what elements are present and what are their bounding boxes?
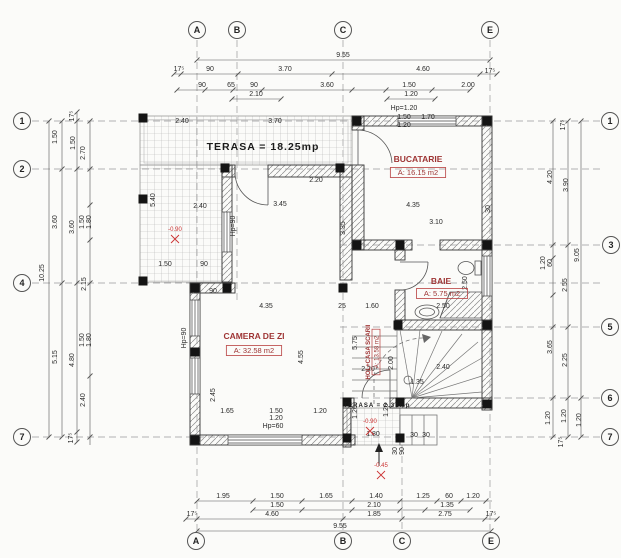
dimension-label: 1.50 — [70, 136, 77, 150]
column — [343, 434, 352, 443]
dimension-label: Hp=90 — [230, 215, 237, 236]
dimension-label: 1.20 — [540, 256, 547, 270]
grid-marker-label: 7 — [607, 432, 612, 442]
dimension-label: 90 — [250, 82, 258, 89]
dimension-label: Hp=1.20 — [391, 105, 418, 112]
dimension-label: 5.15 — [52, 350, 59, 364]
dimension-label: 1.50 — [402, 82, 416, 89]
column — [339, 284, 348, 293]
column — [483, 117, 492, 126]
column — [221, 164, 230, 173]
dimension-label: 90 — [399, 447, 406, 455]
dimension-label: 30 — [392, 447, 399, 455]
dimension-label: 1.20 — [466, 493, 480, 500]
dimension-label: 1.25 — [416, 493, 430, 500]
dimension-label: 1.35 — [410, 379, 424, 386]
grid-marker-label: 6 — [607, 393, 612, 403]
dimension-label: 3.60 — [320, 82, 334, 89]
column — [396, 434, 405, 443]
dimension-label: 17⁵ — [558, 437, 565, 448]
dimension-label: 4.20 — [547, 170, 554, 184]
dimension-label: 1.20 — [545, 411, 552, 425]
column — [483, 321, 492, 330]
grid-marker-label: 2 — [19, 164, 24, 174]
dimension-label: 1.20 — [269, 415, 283, 422]
dimension-label: 4.80 — [69, 353, 76, 367]
column — [223, 284, 232, 293]
grid-marker-label: B — [234, 25, 241, 35]
column — [353, 241, 362, 250]
living-window-left-2 — [190, 358, 200, 394]
column — [139, 277, 148, 286]
column — [394, 321, 403, 330]
dimension-label: 60 — [547, 259, 554, 267]
grid-marker-label: C — [399, 536, 406, 546]
dimension-label: 30 — [410, 432, 418, 439]
level-marker: -0.45 — [374, 463, 388, 469]
grid-marker-label: 1 — [607, 116, 612, 126]
room-area-hol-casa-scarii: A: 13.58 m2 — [375, 335, 381, 368]
column — [483, 400, 492, 409]
dimension-label: 2.50 — [462, 276, 469, 290]
dimension-label: 5.75 — [352, 336, 359, 350]
dimension-label: 9.55 — [333, 523, 347, 530]
room-label-text-hol-casa-scarii: HOL+CASA SCARII — [366, 324, 372, 379]
dimension-label: 3.60 — [69, 220, 76, 234]
dimension-label: 17⁵ — [485, 68, 496, 75]
room-label-baie: BAIE — [431, 276, 452, 286]
dimension-label: 1.50 — [269, 408, 283, 415]
column — [396, 241, 405, 250]
level-marker: -0.90 — [168, 227, 182, 233]
dimension-label: 1.20 — [561, 409, 568, 423]
grid-marker-label: 7 — [19, 432, 24, 442]
grid-marker-label: E — [487, 25, 493, 35]
room-label-terasa-mica: TERASA = 2.31mp — [344, 403, 411, 409]
room-label-bucatarie: BUCATARIE — [394, 154, 443, 164]
grid-marker-label: E — [488, 536, 494, 546]
dimension-label: 2.00 — [461, 82, 475, 89]
level-marker-cross-icon — [377, 471, 385, 479]
dimension-label: 1.80 — [86, 333, 93, 347]
dimension-label: 2.40 — [193, 203, 207, 210]
dimension-label: 4.55 — [298, 350, 305, 364]
stair-walk-arrow — [422, 334, 431, 343]
dimension-label: 3.70 — [278, 66, 292, 73]
dimension-label: 17⁵ — [560, 120, 567, 131]
dimension-label: 4.35 — [406, 202, 420, 209]
dimension-label: 3.70 — [268, 118, 282, 125]
dimension-label: 1.20 — [576, 413, 583, 427]
grid-marker-label: A — [193, 536, 200, 546]
dimension-label: 3.10 — [429, 219, 443, 226]
dimension-label: 1.95 — [216, 493, 230, 500]
dimension-label: 2.00 — [388, 356, 395, 370]
column — [139, 114, 148, 123]
dimension-label: 2.40 — [175, 118, 189, 125]
dimension-label: 1.40 — [369, 493, 383, 500]
grid-marker-label: 5 — [607, 322, 612, 332]
dimension-label: 2.10 — [367, 502, 381, 509]
dimension-label: 2.15 — [81, 277, 88, 291]
level-marker: -0.90 — [363, 419, 377, 425]
dimension-label: 30 — [485, 205, 492, 213]
dimension-label: 2.70 — [80, 146, 87, 160]
exterior-steps — [400, 415, 437, 445]
dimension-label: 1.85 — [367, 511, 381, 518]
living-window-bottom — [228, 435, 302, 445]
dimension-label: 4.35 — [259, 303, 273, 310]
dimension-label: 1.50 — [52, 130, 59, 144]
dimension-label: 17⁵ — [69, 111, 76, 122]
dimension-label: 4.60 — [265, 511, 279, 518]
dimension-label: 1.35 — [440, 502, 454, 509]
column — [191, 348, 200, 357]
dimension-label: 9.55 — [336, 52, 350, 59]
grid-marker-label: C — [340, 25, 347, 35]
dimension-label: 5.40 — [150, 193, 157, 207]
dimension-label: 2.75 — [438, 511, 452, 518]
column — [191, 284, 200, 293]
dimension-label: 25 — [338, 303, 346, 310]
column — [336, 164, 345, 173]
dimension-label: 3.65 — [547, 340, 554, 354]
dimension-label: 2.40 — [436, 364, 450, 371]
room-label-camera-de-zi: CAMERA DE ZI — [223, 331, 284, 341]
kitchen-door — [358, 130, 392, 165]
dimension-label: 1.50 — [397, 114, 411, 121]
column — [353, 117, 362, 126]
dimension-label: 1.20 — [397, 122, 411, 129]
column — [191, 436, 200, 445]
centre-room-door — [235, 172, 268, 205]
dimension-label: 1.50 — [270, 502, 284, 509]
dimension-label: 1.60 — [365, 303, 379, 310]
dimension-label: 2.25 — [562, 353, 569, 367]
room-labels-layer: TERASA = 18.25mpBUCATARIEA: 16.15 m2BAIE… — [207, 141, 468, 409]
dimension-label: 1.65 — [319, 493, 333, 500]
small-terrace-area — [347, 408, 437, 445]
dimension-label: 17⁵ — [68, 433, 75, 444]
dimension-label: 1.50 — [158, 261, 172, 268]
grid-markers-layer: ABCEABCE124713567 — [14, 22, 620, 550]
room-area-bucatarie: A: 16.15 m2 — [398, 168, 438, 177]
column — [139, 195, 148, 204]
room-area-baie: A: 5.75 m2 — [424, 289, 460, 298]
dimension-label: 1.20 — [313, 408, 327, 415]
dimension-label: Hp=90 — [181, 327, 188, 348]
dimension-label: 90 — [200, 261, 208, 268]
dimension-label: 1.65 — [220, 408, 234, 415]
grid-marker-label: 3 — [608, 240, 613, 250]
dimension-label: 2.50 — [436, 303, 450, 310]
dimension-label: 9.05 — [574, 248, 581, 262]
room-area-camera-de-zi: A: 32.58 m2 — [234, 346, 274, 355]
dimension-label: 1.50 — [79, 215, 86, 229]
grid-marker-label: A — [194, 25, 201, 35]
dimension-label: 3.45 — [273, 201, 287, 208]
dimension-label: 17⁵ — [174, 66, 185, 73]
dimension-label: 17⁵ — [486, 511, 497, 518]
grid-marker-label: B — [340, 536, 347, 546]
living-window-left-1 — [190, 300, 200, 336]
dimension-label: 1.80 — [86, 215, 93, 229]
dimension-label: 1.20 — [404, 91, 418, 98]
dimension-label: 1.50 — [79, 333, 86, 347]
dimension-label: 2.20 — [309, 177, 323, 184]
floor-plan-sheet: ABCEABCE124713567 9.5517⁵903.704.6017⁵90… — [0, 0, 621, 558]
dimension-label: Hp=60 — [263, 423, 284, 430]
dimension-label: 90 — [198, 82, 206, 89]
grid-axis-lines — [32, 40, 600, 530]
bath-window — [482, 256, 492, 296]
dimension-label: 3.60 — [52, 215, 59, 229]
dimension-label: 2.55 — [562, 278, 569, 292]
dimension-label: 2.45 — [210, 388, 217, 402]
dimension-label: 10.25 — [39, 264, 46, 282]
dimension-label: 4.60 — [416, 66, 430, 73]
dimension-label: 3.35 — [340, 221, 347, 235]
grid-marker-label: 1 — [19, 116, 24, 126]
dimension-label: 65 — [227, 82, 235, 89]
room-label-terasa: TERASA = 18.25mp — [207, 141, 320, 153]
dimension-label: 90 — [209, 288, 217, 295]
bath-door — [400, 262, 428, 290]
grid-marker-label: 4 — [19, 278, 24, 288]
toilet-icon — [458, 261, 481, 275]
dimension-label: 60 — [445, 493, 453, 500]
dimension-label: 3.90 — [563, 178, 570, 192]
dimension-label: 17⁵ — [187, 511, 198, 518]
dimension-label: 2.40 — [80, 393, 87, 407]
dimension-label: 1.50 — [270, 493, 284, 500]
column — [483, 241, 492, 250]
dimension-label: 2.10 — [249, 91, 263, 98]
floor-plan-drawing: ABCEABCE124713567 9.5517⁵903.704.6017⁵90… — [0, 0, 621, 558]
dimension-label: 1.70 — [421, 114, 435, 121]
dimension-label: 90 — [206, 66, 214, 73]
dimension-label: 30 — [422, 432, 430, 439]
